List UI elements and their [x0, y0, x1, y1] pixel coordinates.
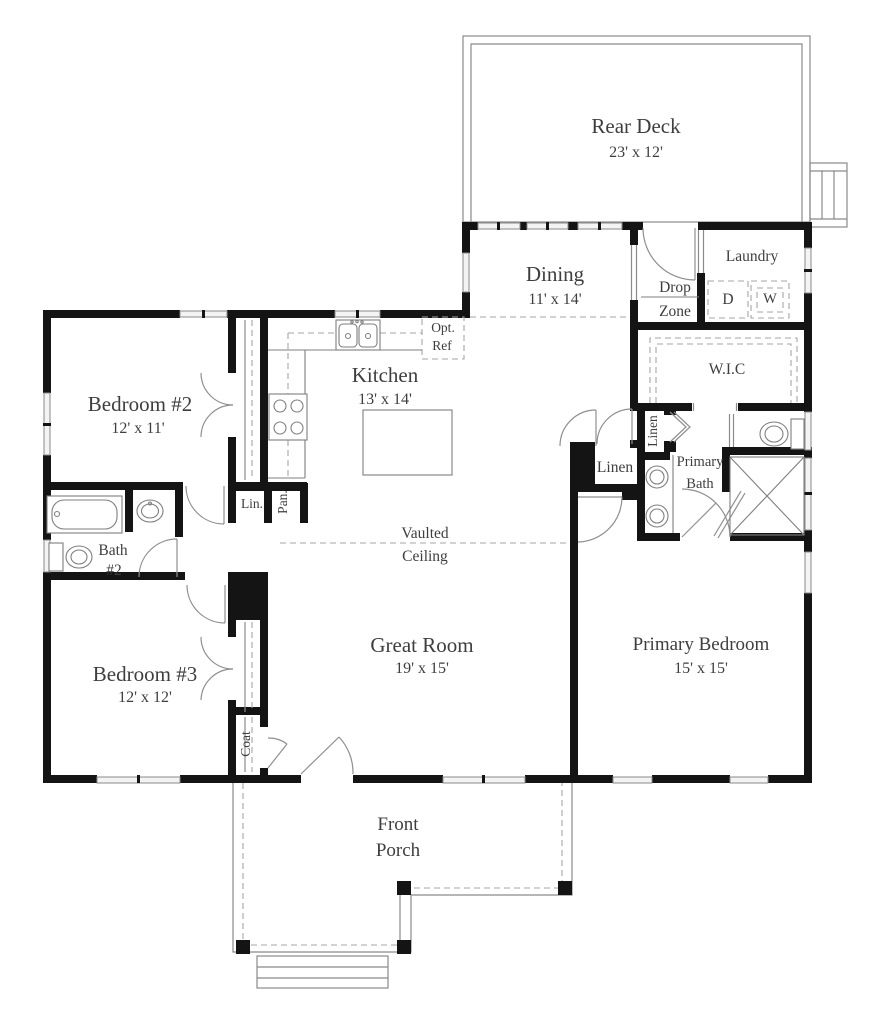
kitchen-island [363, 410, 452, 475]
room-label-drop: Drop [659, 279, 691, 296]
kitchen-sink [336, 320, 380, 350]
dryer-label: D [722, 291, 733, 308]
room-label-kitchen: Kitchen [352, 363, 419, 387]
room-dims-rear-deck: 23' x 12' [609, 144, 663, 161]
room-label-bedroom3: Bedroom #3 [93, 662, 197, 686]
opt-ref-label-2: Ref [432, 338, 452, 353]
vaulted-ceiling-label-1: Vaulted [401, 525, 449, 542]
closet-label-coat: Coat [238, 731, 253, 757]
room-dims-bedroom3: 12' x 12' [118, 689, 172, 706]
room-label-primary-bath-2: Bath [686, 476, 714, 492]
porch-steps [257, 956, 388, 988]
room-label-bath2-1: Bath [98, 542, 128, 559]
room-label-dining: Dining [526, 262, 585, 286]
bath2-toilet [49, 543, 92, 571]
room-label-primary-bedroom: Primary Bedroom [633, 634, 770, 655]
room-label-laundry: Laundry [726, 248, 779, 265]
opt-ref-label-1: Opt. [431, 320, 455, 335]
closet-label-lin: Lin. [241, 496, 263, 511]
room-label-rear-deck: Rear Deck [591, 114, 681, 138]
room-label-bedroom2: Bedroom #2 [88, 392, 192, 416]
range-stove [269, 394, 307, 440]
porch-posts [236, 881, 572, 954]
primary-vanity [646, 455, 673, 533]
room-label-front-porch-1: Front [377, 814, 419, 835]
washer-label: W [763, 291, 777, 307]
closet-label-linen-bath: Linen [645, 415, 660, 447]
dashed-lines [245, 317, 797, 772]
deck-stairs [810, 163, 847, 227]
closet-label-pantry: Pan. [275, 490, 290, 514]
room-dims-primary-bedroom: 15' x 15' [674, 660, 728, 677]
floor-plan-canvas: Rear Deck 23' x 12' Dining 11' x 14' Lau… [0, 0, 878, 1024]
room-dims-bedroom2: 12' x 11' [111, 420, 164, 437]
room-label-front-porch-2: Porch [376, 840, 421, 861]
floor-plan-page: Rear Deck 23' x 12' Dining 11' x 14' Lau… [0, 0, 878, 1024]
shower [730, 457, 804, 535]
room-label-bath2-2: #2 [106, 562, 122, 579]
bathtub [47, 496, 122, 533]
room-label-wic: W.I.C [709, 361, 745, 378]
room-label-great-room: Great Room [370, 633, 473, 657]
room-dims-dining: 11' x 14' [528, 291, 581, 308]
vaulted-ceiling-label-2: Ceiling [402, 548, 448, 565]
room-label-zone: Zone [659, 303, 691, 320]
room-dims-great-room: 19' x 15' [395, 660, 449, 677]
primary-toilet [760, 419, 804, 449]
closet-label-linen-hall: Linen [597, 459, 633, 476]
room-label-primary-bath-1: Primary [677, 454, 724, 470]
bath2-sink [137, 500, 163, 522]
labels: Rear Deck 23' x 12' Dining 11' x 14' Lau… [88, 114, 779, 861]
room-dims-kitchen: 13' x 14' [358, 391, 412, 408]
